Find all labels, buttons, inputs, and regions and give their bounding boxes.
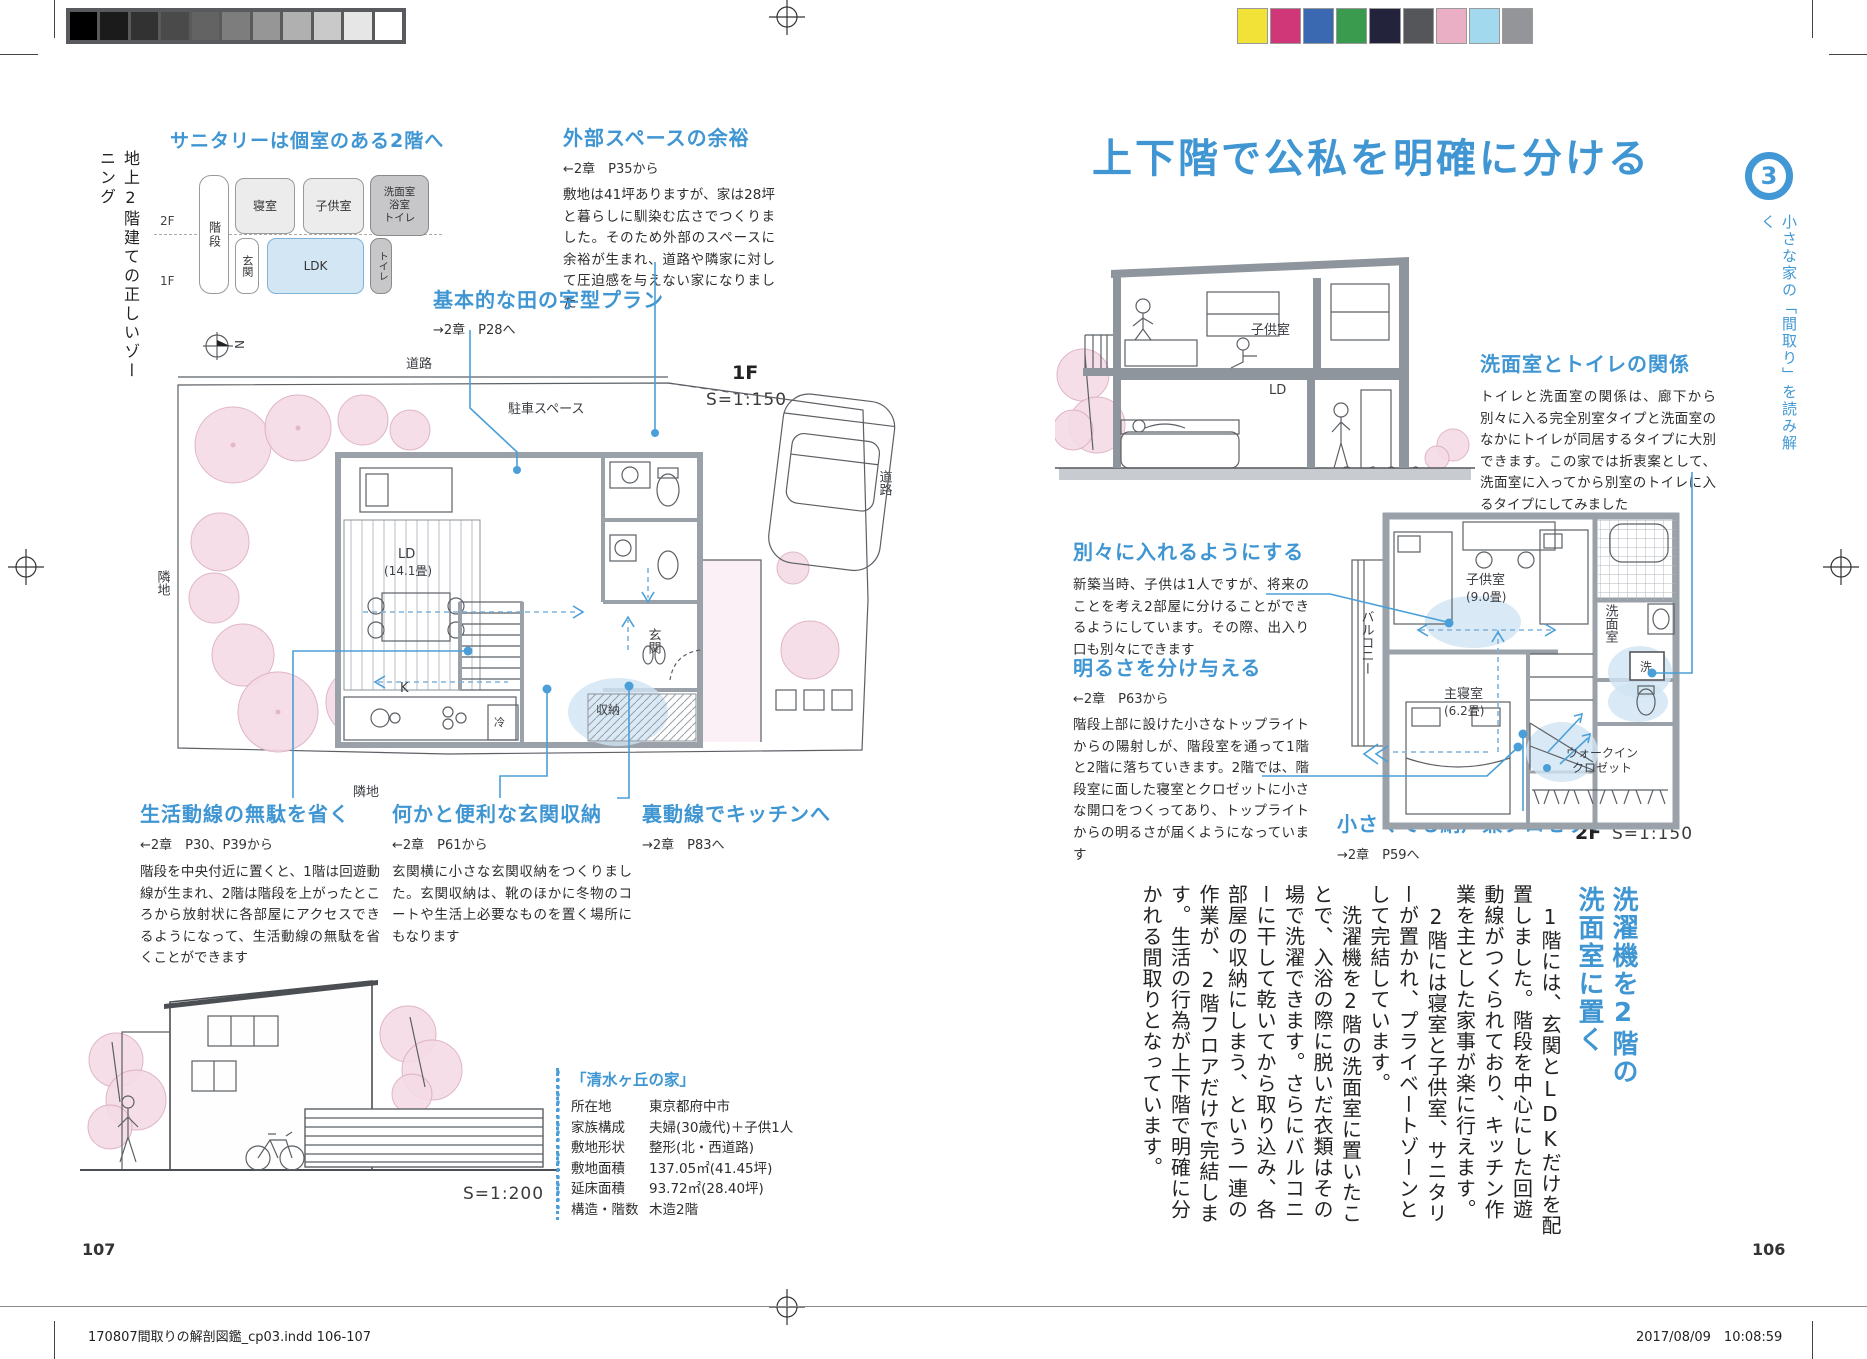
annotation-outdoor-title: 外部スペースの余裕 xyxy=(563,122,775,151)
grayscale-swatch xyxy=(161,12,188,40)
annotation-light-body: 階段上部に設けた小さなトップライトからの陽射しが、階段室を通って1階と2階に落ち… xyxy=(1073,715,1309,866)
svg-text:玄関: 玄関 xyxy=(646,628,662,655)
zoning-room-sanitary: 洗面室 浴室 トイレ xyxy=(370,175,429,236)
annotation-storage-body: 玄関横に小さな玄関収納をつくりました。玄関収納は、靴のほかに冬物のコートや生活上… xyxy=(392,862,632,948)
floor-plan-1f-drawing: 道路 駐車スペース 隣地 隣地 道路 xyxy=(148,350,918,820)
color-swatch xyxy=(1336,8,1367,44)
zoning-room-stairs: 階段 xyxy=(199,175,229,294)
annotation-storage-ref: ←2章 P61から xyxy=(392,834,644,853)
svg-text:冷: 冷 xyxy=(494,716,505,729)
annotation-flow-body: 階段を中央付近に置くと、1階は回遊動線が生まれ、2階は階段を上がったところから放… xyxy=(140,862,380,970)
zoning-floor-2f: 2F xyxy=(160,214,175,228)
elevation-drawing xyxy=(80,962,570,1192)
zoning-heading: サニタリーは個室のある2階へ xyxy=(170,130,444,152)
footer-file-info: 170807間取りの解剖図鑑_cp03.indd 106-107 xyxy=(88,1326,371,1345)
house-info-value: 木造2階 xyxy=(649,1200,698,1221)
house-info-label: 所在地 xyxy=(571,1097,649,1118)
svg-text:(6.2畳): (6.2畳) xyxy=(1444,704,1484,718)
svg-text:子供室: 子供室 xyxy=(1466,572,1505,588)
house-info-label: 延床面積 xyxy=(571,1179,649,1200)
footer-timestamp: 2017/08/09 10:08:59 xyxy=(1636,1326,1782,1345)
zoning-diagram: 2F 1F 階段 寝室 子供室 洗面室 浴室 トイレ 玄関 LDK トイレ xyxy=(152,168,444,298)
right-page-title: 上下階で公私を明確に分ける xyxy=(1092,126,1651,184)
annotation-light-title: 明るさを分け与える xyxy=(1073,652,1313,681)
grayscale-calibration-bar xyxy=(66,8,406,44)
color-swatch xyxy=(1436,8,1467,44)
svg-text:子供室: 子供室 xyxy=(1251,322,1290,338)
zoning-room-kids: 子供室 xyxy=(303,178,364,234)
svg-text:洗面室: 洗面室 xyxy=(1603,604,1619,643)
chapter-number-badge: 3 xyxy=(1745,152,1793,200)
house-info-label: 敷地面積 xyxy=(571,1159,649,1180)
annotation-washtoilet-body: トイレと洗面室の関係は、廊下から別々に入る完全別室タイプと洗面室のなかにトイレが… xyxy=(1480,387,1716,517)
grayscale-swatch xyxy=(344,12,371,40)
svg-text:K: K xyxy=(400,681,409,696)
annotation-gridplan-ref: →2章 P28へ xyxy=(433,319,664,338)
svg-text:LD: LD xyxy=(1269,383,1286,398)
grayscale-swatch xyxy=(375,12,402,40)
color-swatch xyxy=(1403,8,1434,44)
registration-mark-top xyxy=(769,0,805,35)
color-swatch xyxy=(1303,8,1334,44)
grayscale-swatch xyxy=(192,12,219,40)
svg-text:駐車スペース: 駐車スペース xyxy=(508,402,584,417)
trim-mark xyxy=(1812,1321,1813,1359)
house-info-row: 敷地面積137.05㎡(41.45坪) xyxy=(571,1159,831,1180)
trim-mark xyxy=(54,0,55,38)
page-number-right: 106 xyxy=(1752,1240,1785,1259)
svg-text:クロゼット: クロゼット xyxy=(1572,761,1632,775)
svg-text:ウォークイン: ウォークイン xyxy=(1566,746,1638,760)
house-info-row: 延床面積93.72㎡(28.40坪) xyxy=(571,1179,831,1200)
article-paragraph: 1階には、玄関とLDKだけを配置しました。階段を中心にした回遊動線がつくられてお… xyxy=(1450,884,1564,1238)
house-info-value: 整形(北・西道路) xyxy=(649,1138,754,1159)
grayscale-swatch xyxy=(70,12,97,40)
annotation-separate-body: 新築当時、子供は1人ですが、将来のことを考え2部屋に分けることができるようにして… xyxy=(1073,575,1309,661)
footer-rule xyxy=(0,1306,1867,1307)
house-info-row: 所在地東京都府中市 xyxy=(571,1097,831,1118)
house-info-label: 家族構成 xyxy=(571,1118,649,1139)
annotation-backline-ref: →2章 P83へ xyxy=(642,834,842,853)
trim-mark xyxy=(0,54,38,55)
grayscale-swatch xyxy=(100,12,127,40)
color-swatch xyxy=(1270,8,1301,44)
house-info-row: 家族構成夫婦(30歳代)＋子供1人 xyxy=(571,1118,831,1139)
annotation-outdoor-ref: ←2章 P35から xyxy=(563,158,775,177)
grayscale-swatch xyxy=(283,12,310,40)
svg-text:洗: 洗 xyxy=(1640,660,1652,674)
svg-text:隣地: 隣地 xyxy=(353,784,379,800)
house-info-value: 夫婦(30歳代)＋子供1人 xyxy=(649,1118,793,1139)
left-page-sidebar-label: 地上2階建ての正しいゾーニング xyxy=(94,150,142,390)
trim-mark xyxy=(54,1321,55,1359)
house-info-row: 敷地形状整形(北・西道路) xyxy=(571,1138,831,1159)
grayscale-swatch xyxy=(314,12,341,40)
svg-text:(9.0畳): (9.0畳) xyxy=(1466,590,1506,604)
article-paragraph: 2階には寝室と子供室、サニタリーが置かれ、プライベートゾーンとして完結しています… xyxy=(1365,884,1451,1238)
color-swatch xyxy=(1502,8,1533,44)
registration-mark-left xyxy=(8,549,44,585)
zoning-room-bedroom: 寝室 xyxy=(235,178,295,234)
registration-mark-bottom xyxy=(769,1289,805,1325)
svg-text:LD: LD xyxy=(398,547,415,562)
svg-text:N: N xyxy=(232,340,246,349)
annotation-closet-ref: →2章 P59へ xyxy=(1337,844,1608,863)
section-drawing: 子供室 LD xyxy=(1055,240,1475,508)
color-calibration-bar xyxy=(1237,8,1533,44)
grayscale-swatch xyxy=(131,12,158,40)
grayscale-swatch xyxy=(253,12,280,40)
svg-text:収納: 収納 xyxy=(596,703,620,717)
svg-text:主寝室: 主寝室 xyxy=(1444,686,1483,702)
color-swatch xyxy=(1469,8,1500,44)
article-headline: 洗濯機を2階の 洗面室に置く xyxy=(1572,886,1640,1122)
house-info-value: 東京都府中市 xyxy=(649,1097,730,1118)
color-swatch xyxy=(1237,8,1268,44)
house-info-row: 構造・階数木造2階 xyxy=(571,1200,831,1221)
annotation-washtoilet-title: 洗面室とトイレの関係 xyxy=(1480,348,1720,377)
annotation-light-ref: ←2章 P63から xyxy=(1073,688,1313,707)
trim-mark xyxy=(1812,0,1813,38)
house-info-value: 93.72㎡(28.40坪) xyxy=(649,1179,764,1200)
page-number-left: 107 xyxy=(82,1240,115,1259)
house-info-value: 137.05㎡(41.45坪) xyxy=(649,1159,772,1180)
annotation-gridplan-title: 基本的な田の字型プラン xyxy=(433,284,664,313)
color-swatch xyxy=(1369,8,1400,44)
zoning-floor-1f: 1F xyxy=(160,274,175,288)
floor-plan-2f-drawing: 子供室 (9.0畳) 洗面室 洗 主寝室 (6.2畳) ウォークイン クロゼット… xyxy=(1348,502,1682,836)
annotation-separate-title: 別々に入れるようにする xyxy=(1073,536,1313,565)
svg-text:(14.1畳): (14.1畳) xyxy=(384,564,432,578)
house-info-table: 「清水ヶ丘の家」 所在地東京都府中市家族構成夫婦(30歳代)＋子供1人敷地形状整… xyxy=(556,1068,831,1220)
trim-mark xyxy=(1829,54,1867,55)
grayscale-swatch xyxy=(222,12,249,40)
registration-mark-right xyxy=(1823,549,1859,585)
article-body: 1階には、玄関とLDKだけを配置しました。階段を中心にした回遊動線がつくられてお… xyxy=(1078,884,1564,1238)
article-paragraph: 洗濯機を2階の洗面室に置いたことで、入浴の際に脱いだ衣類はその場で洗濯できます。… xyxy=(1137,884,1365,1238)
svg-text:隣地: 隣地 xyxy=(155,569,171,596)
house-info-label: 構造・階数 xyxy=(571,1200,649,1221)
zoning-room-entrance: 玄関 xyxy=(235,238,259,294)
svg-text:道路: 道路 xyxy=(406,356,432,372)
chapter-tab-label: 小さな家の「間取り」を読み解く xyxy=(1758,214,1800,464)
house-info-title: 「清水ヶ丘の家」 xyxy=(571,1068,831,1090)
svg-text:バルコニー: バルコニー xyxy=(1359,610,1375,675)
zoning-room-ldk: LDK xyxy=(267,238,364,294)
book-spread: 170807間取りの解剖図鑑_cp03.indd 106-107 2017/08… xyxy=(0,0,1867,1359)
annotation-flow-ref: ←2章 P30、P39から xyxy=(140,834,392,853)
house-info-label: 敷地形状 xyxy=(571,1138,649,1159)
zoning-room-toilet: トイレ xyxy=(370,238,392,294)
